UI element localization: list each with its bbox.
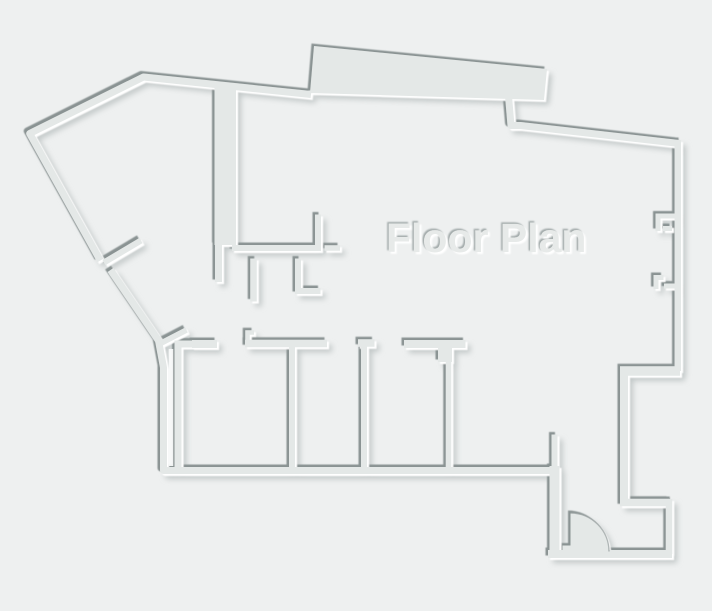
svg-text:Floor Plan: Floor Plan [386,215,586,261]
